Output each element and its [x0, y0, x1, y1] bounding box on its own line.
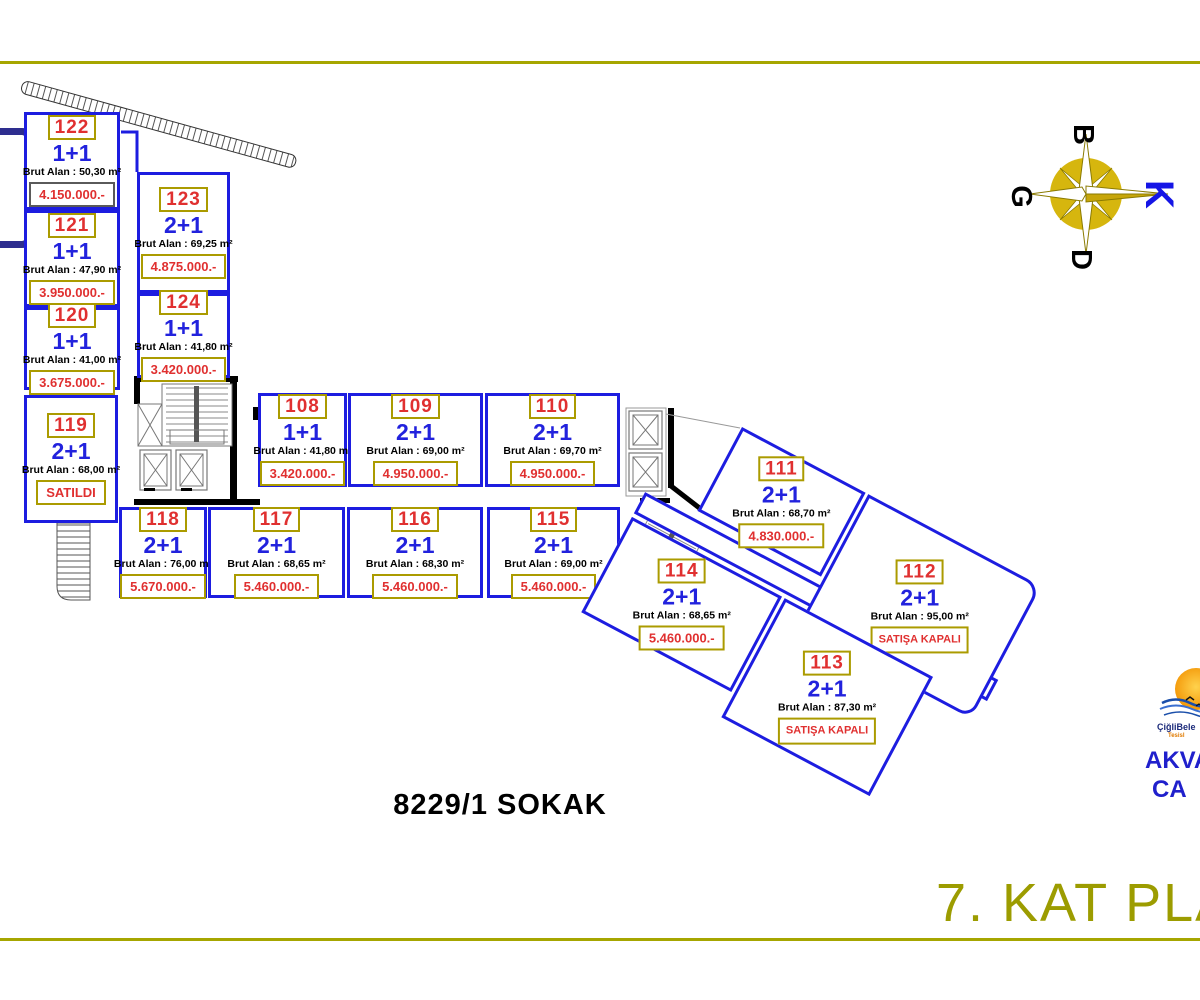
unit-117: 117 2+1 Brut Alan : 68,65 m² 5.460.000.-: [208, 507, 345, 598]
compass-south-label: G: [1004, 185, 1037, 208]
unit-status: SATIŞA KAPALI: [870, 626, 968, 653]
municipality-logo-art: [1160, 668, 1200, 718]
area-value: 69,00 m²: [423, 445, 465, 457]
area-value: 69,00 m²: [561, 558, 603, 570]
unit-type: 2+1: [900, 585, 939, 610]
floor-plan-title: 7. KAT PLA: [936, 872, 1200, 934]
unit-area: Brut Alan : 69,00 m²: [366, 445, 464, 457]
area-value: 68,65 m²: [284, 558, 326, 570]
area-prefix: Brut Alan :: [366, 445, 419, 457]
unit-price: 3.675.000.-: [29, 370, 115, 395]
unit-number: 114: [658, 558, 706, 583]
area-prefix: Brut Alan :: [504, 558, 557, 570]
unit-price: 4.830.000.-: [739, 523, 825, 548]
thin-wall-line: [666, 414, 740, 428]
unit-122: 122 1+1 Brut Alan : 50,30 m² 4.150.000.-: [24, 112, 120, 210]
unit-number: 123: [159, 187, 208, 212]
area-value: 68,30 m²: [422, 558, 464, 570]
area-prefix: Brut Alan :: [227, 558, 280, 570]
unit-price: 5.460.000.-: [234, 574, 320, 599]
central-core: [134, 376, 260, 505]
area-value: 69,70 m²: [560, 445, 602, 457]
plan-structure: [0, 0, 1200, 1000]
unit-price: 3.420.000.-: [141, 357, 227, 382]
unit-price: 5.460.000.-: [372, 574, 458, 599]
project-name-line1: AKVAR: [1145, 747, 1200, 775]
area-prefix: Brut Alan :: [134, 238, 187, 250]
unit-price: 4.950.000.-: [373, 461, 459, 486]
unit-label-stack: 115 2+1 Brut Alan : 69,00 m² 5.460.000.-: [504, 507, 602, 599]
area-value: 68,65 m²: [689, 609, 731, 621]
area-prefix: Brut Alan :: [503, 445, 556, 457]
unit-type: 2+1: [808, 676, 847, 701]
compass-east-label: D: [1064, 249, 1097, 270]
stair-rail: [194, 386, 199, 442]
unit-label-stack: 123 2+1 Brut Alan : 69,25 m² 4.875.000.-: [134, 187, 232, 279]
unit-119: 119 2+1 Brut Alan : 68,00 m² SATILDI: [24, 395, 118, 523]
unit-number: 113: [803, 650, 851, 675]
unit-area: Brut Alan : 69,70 m²: [503, 445, 601, 457]
unit-area: Brut Alan : 68,00 m²: [22, 464, 120, 476]
municipality-subtext: Tesisl: [1168, 733, 1185, 739]
unit-price: 3.950.000.-: [29, 280, 115, 305]
unit-number: 116: [391, 507, 439, 532]
elevator-right: [176, 450, 207, 491]
unit-type: 2+1: [144, 533, 183, 558]
unit-number: 122: [48, 115, 97, 140]
area-prefix: Brut Alan :: [22, 464, 75, 476]
floor-plan-page: 122 1+1 Brut Alan : 50,30 m² 4.150.000.-…: [0, 0, 1200, 1000]
compass-north-label: K: [1136, 180, 1181, 209]
unit-123: 123 2+1 Brut Alan : 69,25 m² 4.875.000.-: [137, 172, 230, 293]
unit-price: 4.950.000.-: [510, 461, 596, 486]
project-name-line2: CA: [1152, 776, 1187, 804]
unit-area: Brut Alan : 76,00 m²: [114, 558, 212, 570]
unit-label-stack: 122 1+1 Brut Alan : 50,30 m² 4.150.000.-: [23, 115, 121, 207]
unit-price: 5.670.000.-: [120, 574, 206, 599]
unit-area: Brut Alan : 41,00 m²: [23, 354, 121, 366]
unit-number: 118: [139, 507, 187, 532]
unit-number: 112: [896, 559, 944, 584]
unit-area: Brut Alan : 87,30 m²: [778, 701, 876, 713]
top-divider: [0, 61, 1200, 64]
area-prefix: Brut Alan :: [23, 166, 76, 178]
unit-type: 2+1: [52, 439, 91, 464]
area-prefix: Brut Alan :: [23, 264, 76, 276]
unit-number: 109: [391, 394, 440, 419]
unit-type: 1+1: [283, 420, 322, 445]
unit-label-stack: 118 2+1 Brut Alan : 76,00 m² 5.670.000.-: [114, 507, 212, 599]
area-prefix: Brut Alan :: [870, 610, 923, 622]
unit-label-stack: 124 1+1 Brut Alan : 41,80 m² 3.420.000.-: [134, 290, 232, 382]
unit-number: 111: [758, 456, 805, 481]
area-value: 41,80 m²: [310, 445, 352, 457]
unit-label-stack: 114 2+1 Brut Alan : 68,65 m² 5.460.000.-: [633, 558, 731, 650]
unit-118: 118 2+1 Brut Alan : 76,00 m² 5.670.000.-: [119, 507, 207, 598]
unit-area: Brut Alan : 68,65 m²: [633, 609, 731, 621]
area-prefix: Brut Alan :: [23, 354, 76, 366]
unit-area: Brut Alan : 69,00 m²: [504, 558, 602, 570]
unit-number: 124: [159, 290, 208, 315]
unit-price: 3.420.000.-: [260, 461, 346, 486]
unit-108: 108 1+1 Brut Alan : 41,80 m² 3.420.000.-: [258, 393, 347, 487]
unit-price: 5.460.000.-: [511, 574, 597, 599]
unit-number: 121: [48, 213, 97, 238]
elevator-left: [140, 450, 171, 491]
unit-price: 5.460.000.-: [639, 625, 725, 650]
area-value: 95,00 m²: [927, 610, 969, 622]
unit-type: 2+1: [257, 533, 296, 558]
unit-status: SATILDI: [36, 480, 106, 505]
unit-area: Brut Alan : 69,25 m²: [134, 238, 232, 250]
unit-type: 2+1: [164, 213, 203, 238]
area-value: 50,30 m²: [79, 166, 121, 178]
municipality-name: ÇiğliBele: [1157, 722, 1196, 732]
area-value: 69,25 m²: [191, 238, 233, 250]
stepped-boundary: [121, 132, 137, 172]
unit-status: SATIŞA KAPALI: [778, 717, 876, 744]
area-prefix: Brut Alan :: [114, 558, 167, 570]
unit-label-stack: 119 2+1 Brut Alan : 68,00 m² SATILDI: [22, 413, 120, 505]
unit-label-stack: 111 2+1 Brut Alan : 68,70 m² 4.830.000.-: [732, 456, 830, 548]
area-prefix: Brut Alan :: [778, 701, 831, 713]
unit-number: 117: [253, 507, 301, 532]
compass-west-label: B: [1066, 124, 1099, 145]
left-ramp-hatch: [57, 523, 90, 600]
unit-label-stack: 109 2+1 Brut Alan : 69,00 m² 4.950.000.-: [366, 394, 464, 486]
unit-area: Brut Alan : 47,90 m²: [23, 264, 121, 276]
unit-label-stack: 110 2+1 Brut Alan : 69,70 m² 4.950.000.-: [503, 394, 601, 486]
unit-type: 2+1: [662, 584, 701, 609]
unit-label-stack: 116 2+1 Brut Alan : 68,30 m² 5.460.000.-: [366, 507, 464, 599]
unit-label-stack: 113 2+1 Brut Alan : 87,30 m² SATIŞA KAPA…: [778, 650, 876, 744]
unit-type: 1+1: [164, 316, 203, 341]
unit-type: 2+1: [395, 533, 434, 558]
unit-type: 1+1: [53, 329, 92, 354]
unit-area: Brut Alan : 41,80 m²: [134, 341, 232, 353]
unit-area: Brut Alan : 50,30 m²: [23, 166, 121, 178]
unit-type: 2+1: [762, 482, 801, 507]
unit-type: 1+1: [53, 141, 92, 166]
unit-label-stack: 120 1+1 Brut Alan : 41,00 m² 3.675.000.-: [23, 303, 121, 395]
unit-110: 110 2+1 Brut Alan : 69,70 m² 4.950.000.-: [485, 393, 620, 487]
area-value: 76,00 m²: [170, 558, 212, 570]
unit-area: Brut Alan : 68,70 m²: [732, 507, 830, 519]
area-prefix: Brut Alan :: [253, 445, 306, 457]
area-value: 68,00 m²: [78, 464, 120, 476]
unit-type: 2+1: [534, 533, 573, 558]
area-value: 47,90 m²: [79, 264, 121, 276]
unit-area: Brut Alan : 68,65 m²: [227, 558, 325, 570]
unit-number: 110: [529, 394, 577, 419]
unit-label-stack: 117 2+1 Brut Alan : 68,65 m² 5.460.000.-: [227, 507, 325, 599]
unit-number: 108: [278, 394, 327, 419]
area-value: 68,70 m²: [789, 507, 831, 519]
area-value: 41,00 m²: [79, 354, 121, 366]
area-prefix: Brut Alan :: [633, 609, 686, 621]
area-value: 41,80 m²: [191, 341, 233, 353]
unit-number: 119: [47, 413, 95, 438]
unit-121: 121 1+1 Brut Alan : 47,90 m² 3.950.000.-: [24, 210, 120, 307]
unit-area: Brut Alan : 68,30 m²: [366, 558, 464, 570]
unit-120: 120 1+1 Brut Alan : 41,00 m² 3.675.000.-: [24, 307, 120, 390]
unit-price: 4.150.000.-: [29, 182, 115, 207]
unit-type: 1+1: [53, 239, 92, 264]
unit-price: 4.875.000.-: [141, 254, 227, 279]
area-prefix: Brut Alan :: [366, 558, 419, 570]
area-value: 87,30 m²: [834, 701, 876, 713]
unit-label-stack: 112 2+1 Brut Alan : 95,00 m² SATIŞA KAPA…: [870, 559, 968, 653]
unit-type: 2+1: [533, 420, 572, 445]
unit-type: 2+1: [396, 420, 435, 445]
unit-label-stack: 108 1+1 Brut Alan : 41,80 m² 3.420.000.-: [253, 394, 351, 486]
unit-number: 115: [530, 507, 578, 532]
elevator-upper: [629, 411, 662, 449]
unit-124: 124 1+1 Brut Alan : 41,80 m² 3.420.000.-: [137, 293, 230, 378]
area-prefix: Brut Alan :: [732, 507, 785, 519]
unit-109: 109 2+1 Brut Alan : 69,00 m² 4.950.000.-: [348, 393, 483, 487]
unit-area: Brut Alan : 95,00 m²: [870, 610, 968, 622]
unit-116: 116 2+1 Brut Alan : 68,30 m² 5.460.000.-: [347, 507, 483, 598]
unit-area: Brut Alan : 41,80 m²: [253, 445, 351, 457]
bottom-divider: [0, 938, 1200, 941]
elevator-lower: [629, 453, 662, 491]
street-label: 8229/1 SOKAK: [340, 789, 660, 822]
unit-label-stack: 121 1+1 Brut Alan : 47,90 m² 3.950.000.-: [23, 213, 121, 305]
area-prefix: Brut Alan :: [134, 341, 187, 353]
unit-number: 120: [48, 303, 97, 328]
